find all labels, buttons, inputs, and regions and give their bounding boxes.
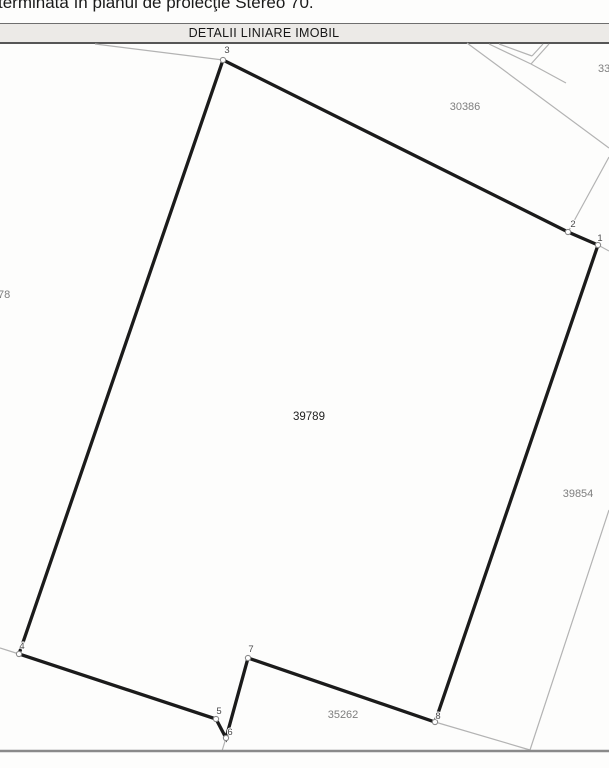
- neighbor-boundary-line-11: [435, 722, 530, 750]
- neighbor-boundary-line-5: [499, 44, 532, 56]
- vertex-marker-5: [213, 716, 218, 721]
- parcel-label-30386: 30386: [450, 101, 481, 113]
- vertex-label-6: 6: [227, 727, 232, 738]
- vertex-label-3: 3: [224, 45, 229, 56]
- neighbor-boundary-line-2: [467, 43, 609, 148]
- vertex-label-8: 8: [435, 711, 440, 722]
- parcel-label-39854: 39854: [563, 488, 594, 500]
- neighbor-boundary-line-10: [530, 510, 609, 750]
- neighbor-boundary-line-7: [531, 64, 566, 83]
- vertex-label-2: 2: [570, 219, 575, 230]
- neighbor-boundary-line-1: [95, 44, 223, 60]
- parcel-label-33: 33: [598, 63, 609, 75]
- vertex-marker-7: [245, 655, 250, 660]
- vertex-marker-2: [565, 229, 570, 234]
- vertex-marker-3: [220, 57, 225, 62]
- parcel-label-78: 78: [0, 289, 10, 301]
- neighbor-boundary-line-6: [532, 44, 543, 56]
- neighbor-boundary-line-3: [489, 44, 531, 64]
- vertex-label-7: 7: [248, 644, 253, 655]
- vertex-label-5: 5: [216, 706, 221, 717]
- cadastral-plan-page: { "page": { "top_text": "terminată în pl…: [0, 0, 609, 768]
- parcel-label-35262: 35262: [328, 709, 359, 721]
- parcel-label-main-39789: 39789: [293, 411, 325, 423]
- vertex-label-1: 1: [597, 233, 602, 244]
- vertex-label-4: 4: [19, 641, 24, 652]
- parcel-outline: [19, 60, 598, 738]
- cadastral-plan-drawing: 12345678303863378398543526239789: [0, 0, 609, 768]
- vertex-marker-4: [16, 651, 21, 656]
